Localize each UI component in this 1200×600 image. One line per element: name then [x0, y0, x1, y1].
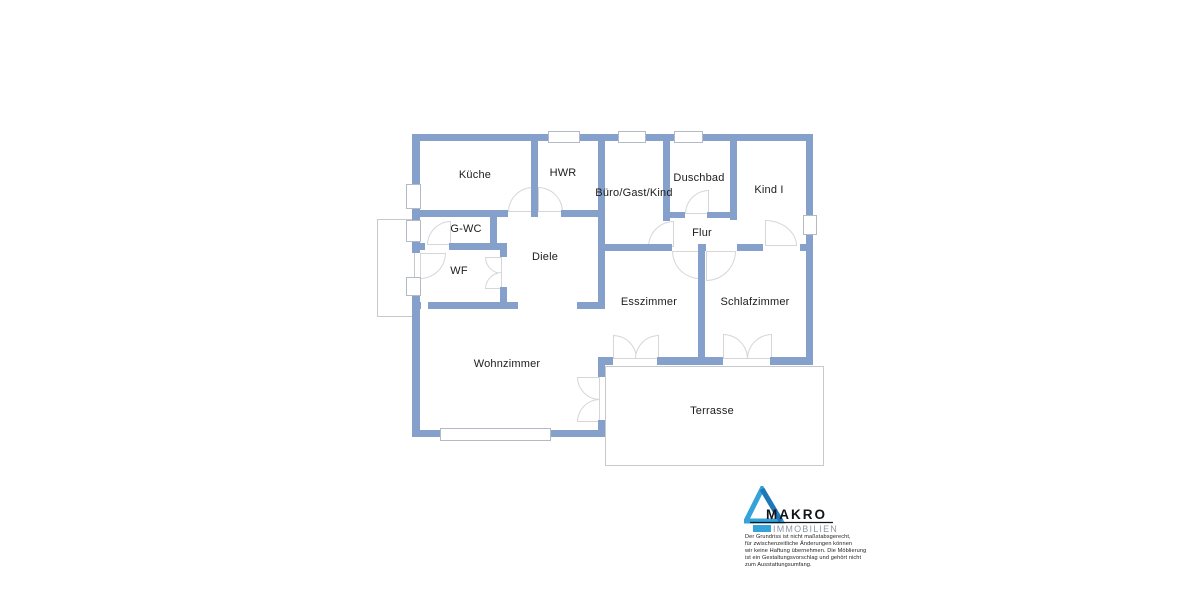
window [548, 131, 580, 143]
disclaimer-line: zum Ausstattungsumfang. [745, 562, 885, 569]
wall [531, 141, 538, 217]
door-arc-kueche [508, 187, 533, 212]
disclaimer-line: Der Grundriss ist nicht maßstabsgerecht, [745, 534, 885, 541]
wall [412, 302, 421, 309]
door-arc-duschbad [685, 190, 709, 214]
logo-subtitle-text: IMMOBILIEN [773, 524, 838, 534]
door-arc-esszimmer-terrace-left [613, 335, 637, 359]
wall [412, 134, 813, 141]
wall [657, 357, 723, 365]
disclaimer-line: wir keine Haftung übernehmen. Die Möblie… [745, 548, 885, 555]
wall [412, 243, 425, 250]
room-label-diele: Diele [532, 251, 558, 263]
wall [412, 277, 420, 437]
door-arc-esszimmer-terrace-right [635, 335, 659, 359]
wall [707, 212, 730, 218]
wall [598, 141, 605, 309]
door-arc-hwr [538, 187, 563, 212]
room-label-esszimmer: Esszimmer [621, 296, 677, 308]
window [406, 277, 421, 296]
wall [698, 251, 705, 357]
wall [800, 244, 813, 251]
makro-immobilien-logo: MAKRO IMMOBILIEN [744, 486, 884, 538]
wall [500, 250, 507, 257]
wall [663, 212, 685, 218]
wall [730, 141, 737, 220]
room-label-gwc: G-WC [450, 223, 481, 235]
disclaimer-line: für zwischenzeitliche Änderungen können [745, 541, 885, 548]
door-arc-gwc [427, 221, 451, 245]
room-label-kind1: Kind I [754, 184, 783, 196]
room-label-schlafzimmer: Schlafzimmer [720, 296, 789, 308]
window [440, 428, 551, 441]
room-label-kueche: Küche [459, 169, 491, 181]
logo-name-text: MAKRO [766, 507, 827, 522]
window [803, 215, 817, 235]
wall [770, 357, 813, 365]
wall [737, 244, 763, 251]
disclaimer-text: Der Grundriss ist nicht maßstabsgerecht,… [745, 534, 885, 569]
wall [598, 357, 605, 377]
room-label-flur: Flur [692, 227, 712, 239]
door-arc-wohnzimmer-terrace-upper [577, 377, 600, 400]
room-label-buero: Büro/Gast/Kind [595, 187, 672, 199]
door-arc-wohnzimmer-terrace-lower [577, 399, 600, 422]
wall [698, 244, 706, 251]
wall [428, 302, 518, 309]
wall [598, 244, 672, 251]
logo-accent-rect [753, 525, 771, 532]
wall [449, 243, 507, 250]
wall [561, 210, 598, 217]
window [674, 131, 703, 143]
window [618, 131, 646, 143]
door-arc-schlafzimmer-terrace-left [723, 334, 748, 359]
room-label-wohnzimmer: Wohnzimmer [474, 358, 541, 370]
wall [598, 420, 605, 437]
door-arc-kind1 [765, 220, 797, 246]
room-label-duschbad: Duschbad [673, 172, 724, 184]
room-label-hwr: HWR [550, 167, 577, 179]
room-label-terrasse: Terrasse [690, 405, 734, 417]
room-label-wf: WF [450, 265, 468, 277]
door-arc-esszimmer [672, 251, 700, 279]
door-arc-schlafzimmer-terrace-right [747, 334, 772, 359]
door-arc-entrance [420, 253, 446, 279]
wall [663, 141, 670, 221]
disclaimer-line: ist ein Gestaltungsvorschlag und gehört … [745, 555, 885, 562]
window [406, 184, 421, 209]
window [406, 220, 421, 242]
door-arc-schlafzimmer [706, 251, 736, 281]
floorplan-canvas: Küche HWR Büro/Gast/Kind Duschbad Kind I… [0, 0, 1200, 600]
